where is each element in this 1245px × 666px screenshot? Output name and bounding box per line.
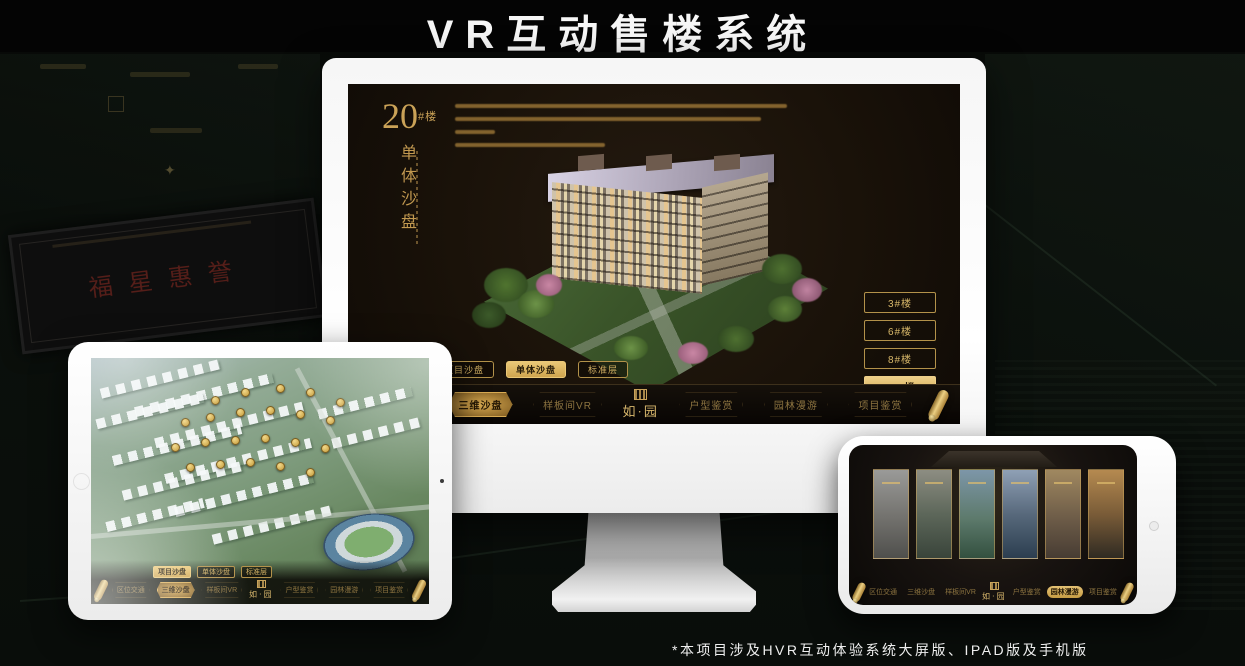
scroll-menu-button[interactable] [927, 388, 951, 422]
stadium [320, 508, 419, 576]
building-marker[interactable] [201, 438, 210, 447]
building-marker[interactable] [246, 458, 255, 467]
tablet-device: 项目沙盘 单体沙盘 标准层 区位交通 三维沙盘 样板间VR 如·园 户型鉴赏 园… [68, 342, 452, 620]
monitor-stand [552, 508, 756, 612]
tablet-view-tabs: 项目沙盘 单体沙盘 标准层 [153, 566, 272, 578]
nav-garden-tour[interactable]: 园林漫游 [325, 582, 363, 598]
intro-line [455, 117, 761, 121]
tab-standard-floor[interactable]: 标准层 [241, 566, 272, 578]
scroll-menu-button[interactable] [1119, 581, 1135, 602]
model-dormer [578, 154, 604, 171]
floor-button-6[interactable]: 6#楼 [864, 320, 936, 341]
nav-location-traffic[interactable]: 区位交通 [865, 586, 901, 598]
building-row [134, 373, 274, 417]
phone-navbar: 区位交通 三维沙盘 样板间VR 如·园 户型鉴赏 园林漫游 项目鉴赏 [855, 582, 1131, 602]
intro-line [455, 130, 495, 134]
building-marker[interactable] [291, 438, 300, 447]
tablet-home-button[interactable] [73, 473, 90, 490]
road [295, 367, 407, 572]
subtitle-english-line [416, 148, 418, 244]
tab-single-sandbox[interactable]: 单体沙盘 [506, 361, 566, 378]
nav-showroom-vr[interactable]: 样板间VR [941, 586, 980, 598]
plaque-text: 福星惠誉 [86, 249, 249, 303]
building-marker[interactable] [186, 463, 195, 472]
building-marker[interactable] [216, 460, 225, 469]
brand-logo: 如·园 [982, 582, 1007, 602]
brand-logo-text: 如·园 [982, 591, 1007, 602]
tree [768, 296, 802, 322]
building-row [122, 461, 243, 500]
tree [718, 326, 754, 352]
section-subtitle-vertical: 单体沙盘 [394, 144, 418, 236]
scene-card[interactable] [916, 469, 952, 559]
tablet-bottom-overlay: 项目沙盘 单体沙盘 标准层 区位交通 三维沙盘 样板间VR 如·园 户型鉴赏 园… [91, 560, 429, 604]
nav-floorplan[interactable]: 户型鉴赏 [679, 392, 743, 417]
phone-camera-icon [1149, 521, 1159, 531]
tab-project-sandbox[interactable]: 项目沙盘 [153, 566, 191, 578]
building-row [212, 505, 333, 544]
view-tab-group: 项目沙盘 单体沙盘 标准层 [434, 361, 628, 378]
building-marker[interactable] [171, 443, 180, 452]
seal-icon [990, 582, 999, 590]
building-marker[interactable] [336, 398, 345, 407]
model-dormer [646, 154, 672, 171]
nav-3d-sandbox[interactable]: 三维沙盘 [903, 586, 939, 598]
road [91, 504, 429, 539]
floor-button-group: 3#楼 6#楼 8#楼 20#楼 [864, 292, 936, 397]
nav-floorplan[interactable]: 户型鉴赏 [1009, 586, 1045, 598]
model-front-face [552, 182, 702, 294]
building-marker[interactable] [206, 413, 215, 422]
model-side-face [702, 172, 768, 285]
nav-showroom-vr[interactable]: 样板间VR [533, 392, 602, 417]
building-marker[interactable] [181, 418, 190, 427]
scroll-menu-button[interactable] [93, 578, 110, 601]
nav-location-traffic[interactable]: 区位交通 [112, 582, 150, 598]
building-marker[interactable] [296, 410, 305, 419]
nav-garden-tour[interactable]: 园林漫游 [764, 392, 828, 417]
model-dormer [714, 154, 740, 171]
building-number-suffix: #楼 [418, 111, 437, 123]
building-marker[interactable] [326, 416, 335, 425]
scroll-menu-button[interactable] [410, 578, 427, 601]
bg-map-left [0, 54, 320, 214]
map-star-icon: ✦ [164, 162, 176, 179]
map-label [40, 64, 86, 69]
map-label [130, 72, 190, 77]
scene-card[interactable] [1002, 469, 1038, 559]
phone-device: 区位交通 三维沙盘 样板间VR 如·园 户型鉴赏 园林漫游 项目鉴赏 [838, 436, 1176, 614]
building-row [154, 402, 304, 448]
building-marker[interactable] [321, 444, 330, 453]
building-marker[interactable] [306, 388, 315, 397]
seal-icon [634, 389, 647, 400]
brand-logo: 如·园 [623, 389, 659, 420]
building-row [112, 424, 242, 466]
nav-garden-tour[interactable]: 园林漫游 [1047, 586, 1083, 598]
building-marker[interactable] [306, 468, 315, 477]
promo-canvas: ✦ 福星惠誉 VR互动售楼系统 20#楼 单体沙盘 [0, 0, 1245, 666]
building-row [105, 498, 204, 532]
scene-card[interactable] [959, 469, 995, 559]
award-plaque: 福星惠誉 [8, 198, 328, 355]
scene-gallery [873, 469, 1124, 559]
footnote-text: *本项目涉及HVR互动体验系统大屏版、IPAD版及手机版 [672, 640, 1089, 660]
intro-paragraph [455, 104, 787, 156]
page-title: VR互动售楼系统 [0, 2, 1245, 60]
building-marker[interactable] [266, 406, 275, 415]
scene-card[interactable] [873, 469, 909, 559]
model-building [552, 164, 772, 292]
flower-tree [792, 278, 822, 302]
plaque-frame: 福星惠誉 [19, 209, 317, 343]
nav-project-gallery[interactable]: 项目鉴赏 [1085, 586, 1121, 598]
nav-showroom-vr[interactable]: 样板间VR [201, 582, 242, 598]
building-marker[interactable] [261, 434, 270, 443]
building-marker[interactable] [276, 462, 285, 471]
scene-card[interactable] [1088, 469, 1124, 559]
building-3d-model[interactable] [466, 150, 846, 396]
section-heading: 20#楼 [382, 98, 437, 134]
tree [614, 336, 648, 360]
map-landmark-icon [108, 96, 124, 112]
flower-tree [536, 274, 562, 296]
building-marker[interactable] [276, 384, 285, 393]
building-number: 20 [382, 96, 418, 136]
brand-logo-text: 如·园 [249, 589, 274, 600]
tablet-navbar: 区位交通 三维沙盘 样板间VR 如·园 户型鉴赏 园林漫游 项目鉴赏 [97, 579, 423, 601]
building-marker[interactable] [231, 436, 240, 445]
building-marker[interactable] [211, 396, 220, 405]
tablet-screen: 项目沙盘 单体沙盘 标准层 区位交通 三维沙盘 样板间VR 如·园 户型鉴赏 园… [91, 358, 429, 604]
brand-logo-text: 如·园 [623, 401, 659, 420]
building-marker[interactable] [241, 388, 250, 397]
scene-card[interactable] [1045, 469, 1081, 559]
tree [762, 254, 802, 284]
intro-line [455, 143, 605, 147]
map-label [238, 64, 278, 69]
building-marker[interactable] [236, 408, 245, 417]
nav-project-gallery[interactable]: 项目鉴赏 [370, 582, 408, 598]
tab-single-sandbox[interactable]: 单体沙盘 [197, 566, 235, 578]
map-label [150, 128, 202, 133]
nav-3d-sandbox[interactable]: 三维沙盘 [157, 582, 195, 598]
nav-project-gallery[interactable]: 项目鉴赏 [848, 392, 912, 417]
tab-standard-floor[interactable]: 标准层 [578, 361, 628, 378]
building-row [100, 359, 221, 398]
building-row [95, 393, 204, 429]
seal-icon [257, 580, 266, 588]
building-row [174, 473, 314, 517]
tree [472, 302, 506, 328]
building-row [164, 438, 312, 484]
nav-floorplan[interactable]: 户型鉴赏 [280, 582, 318, 598]
brand-logo: 如·园 [249, 580, 274, 600]
flower-tree [678, 342, 708, 364]
intro-line [455, 104, 787, 108]
nav-3d-sandbox[interactable]: 三维沙盘 [449, 392, 513, 417]
tablet-camera-icon [440, 479, 444, 483]
floor-button-3[interactable]: 3#楼 [864, 292, 936, 313]
phone-screen: 区位交通 三维沙盘 样板间VR 如·园 户型鉴赏 园林漫游 项目鉴赏 [849, 445, 1137, 605]
floor-button-8[interactable]: 8#楼 [864, 348, 936, 369]
building-row [317, 387, 413, 420]
building-row [331, 417, 421, 448]
